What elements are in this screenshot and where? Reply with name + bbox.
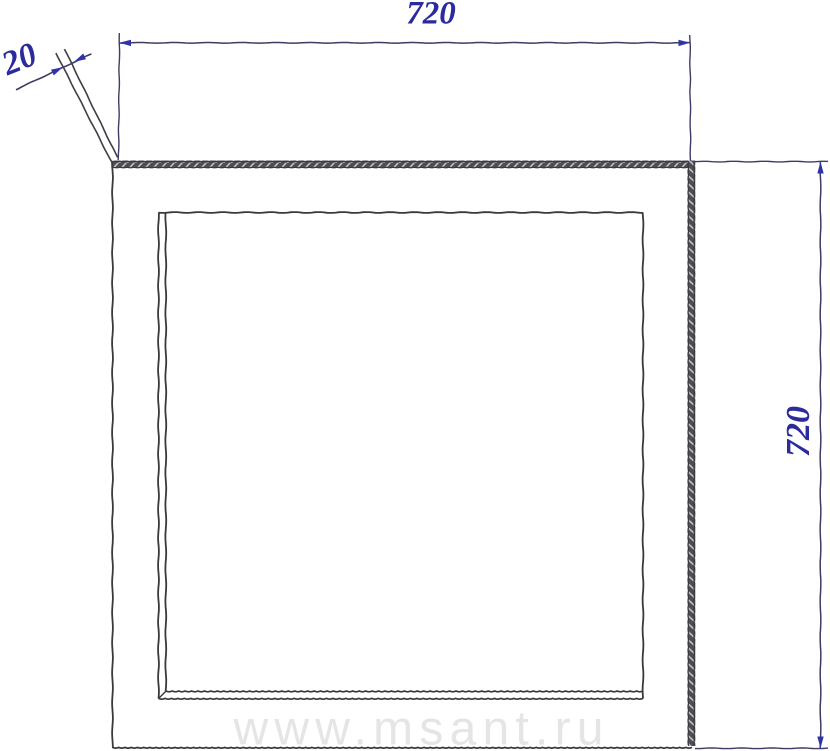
svg-text:www.msant.ru: www.msant.ru [233,703,604,751]
svg-text:720: 720 [406,0,456,32]
svg-text:20: 20 [0,36,42,83]
svg-text:720: 720 [780,406,817,457]
